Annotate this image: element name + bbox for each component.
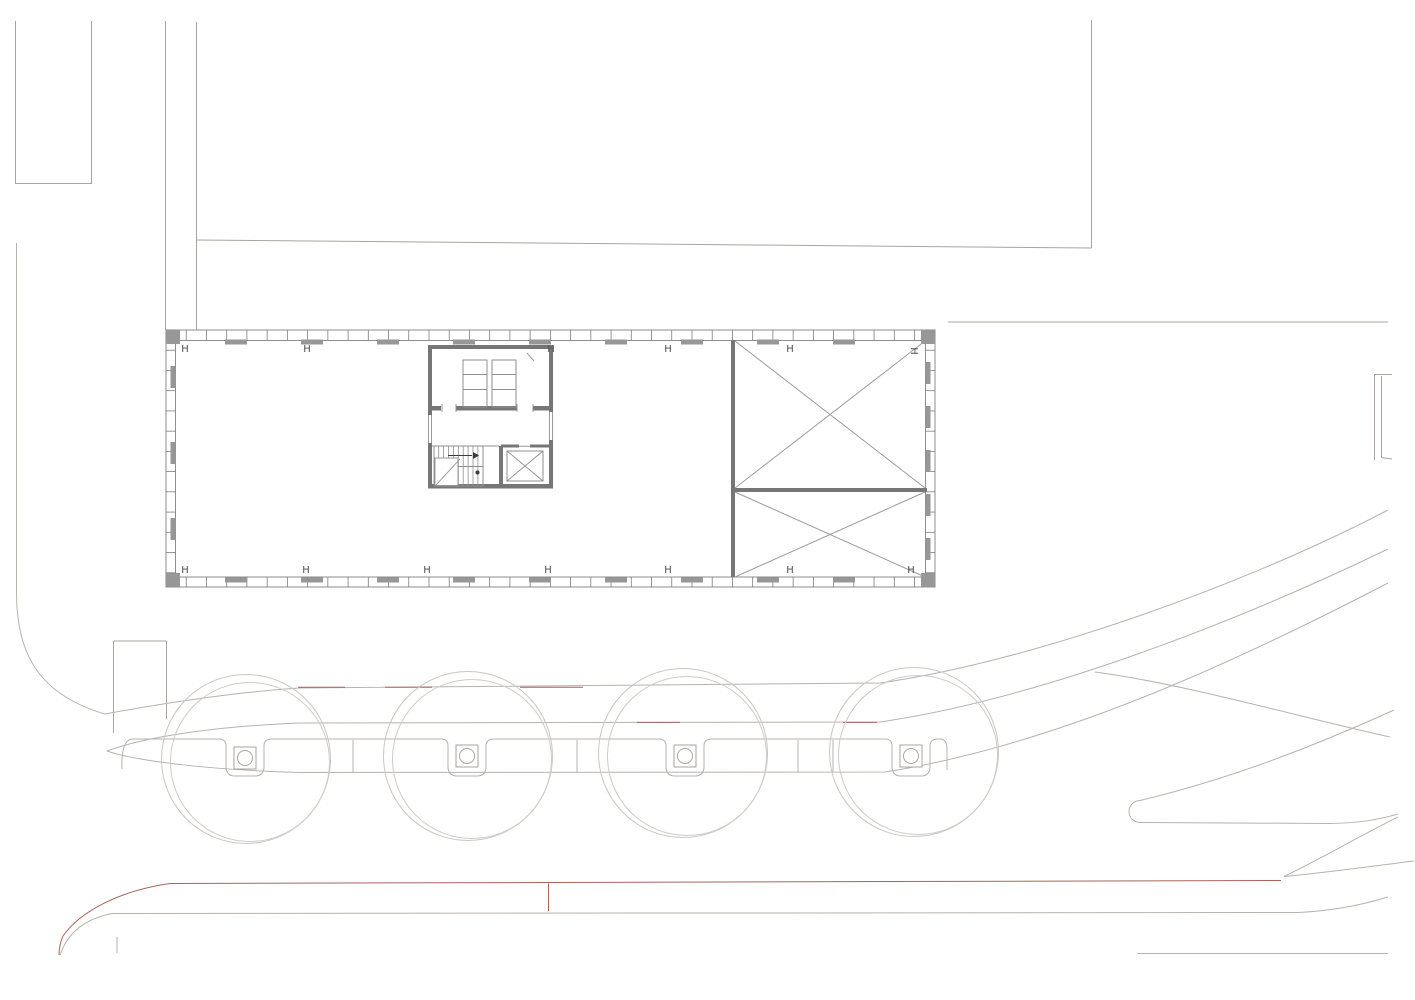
column-marker: H [664, 565, 672, 576]
street-trees [162, 668, 999, 844]
facade-pier [926, 450, 931, 472]
column-marker: H [302, 565, 310, 576]
architectural-site-plan: HHHHHHHHHHHHH [0, 0, 1415, 1000]
braced-room-wall [731, 488, 927, 492]
facade-pier [377, 340, 399, 345]
facade-pier [926, 362, 931, 384]
street-edge-line [1284, 861, 1414, 877]
facade-pier [833, 578, 855, 583]
column-marker: H [181, 344, 189, 355]
column-marker: H [786, 565, 794, 576]
facade-pier [453, 578, 475, 583]
facade-pier [757, 340, 779, 345]
column-marker: H [786, 344, 794, 355]
column-marker: H [303, 344, 311, 355]
facade-pier [171, 442, 176, 464]
red-utility-line [59, 884, 170, 956]
column-marker: H [423, 565, 431, 576]
column-marker: H [664, 344, 672, 355]
facade-pier [171, 518, 176, 540]
facade-corner-pier [166, 330, 180, 344]
stair-start-dot [476, 471, 480, 475]
facade-pier [833, 340, 855, 345]
street-edge-line [60, 897, 1388, 955]
core-wall [499, 446, 503, 486]
column-marker: H [907, 565, 915, 576]
red-utility-line [170, 881, 1281, 884]
facade-pier [225, 578, 247, 583]
facade-corner-pier [166, 573, 180, 587]
facade-pier [681, 340, 703, 345]
core-wall [428, 345, 553, 349]
facade-pier [681, 578, 703, 583]
core-wall [501, 445, 519, 448]
facade-pier [377, 578, 399, 583]
site-line [1381, 458, 1392, 460]
street-edge-line [1140, 710, 1394, 801]
street-edge-line [1129, 801, 1140, 823]
street-edge-line [107, 583, 1388, 773]
column-marker: H [544, 565, 552, 576]
column-marker: H [181, 565, 189, 576]
facade-pier [171, 366, 176, 388]
column-marker: H [908, 347, 919, 355]
site-line [197, 240, 1092, 248]
facade-pier [926, 538, 931, 560]
column-marker: H [547, 344, 555, 355]
facade-pier [301, 578, 323, 583]
stair-landing [435, 458, 458, 486]
facade-pier [926, 494, 931, 516]
facade-pier [926, 406, 931, 428]
core-wall [430, 406, 441, 411]
site-line [16, 21, 92, 184]
street-edge-line [1284, 817, 1398, 877]
utility-red-lines [59, 687, 1281, 955]
facade-pier [605, 578, 627, 583]
street-edge-line [1095, 672, 1390, 737]
facade-pier [453, 340, 475, 345]
core-wall [533, 406, 549, 411]
street-edge-line [1140, 814, 1398, 824]
core-wall [530, 445, 549, 448]
floor-plan-canvas: HHHHHHHHHHHHH [0, 0, 1415, 1000]
facade-pier [605, 340, 627, 345]
facade-pier [757, 578, 779, 583]
facade-pier [529, 578, 551, 583]
facade-corner-pier [921, 573, 935, 587]
braced-room-wall [731, 340, 735, 577]
facade-pier [225, 340, 247, 345]
